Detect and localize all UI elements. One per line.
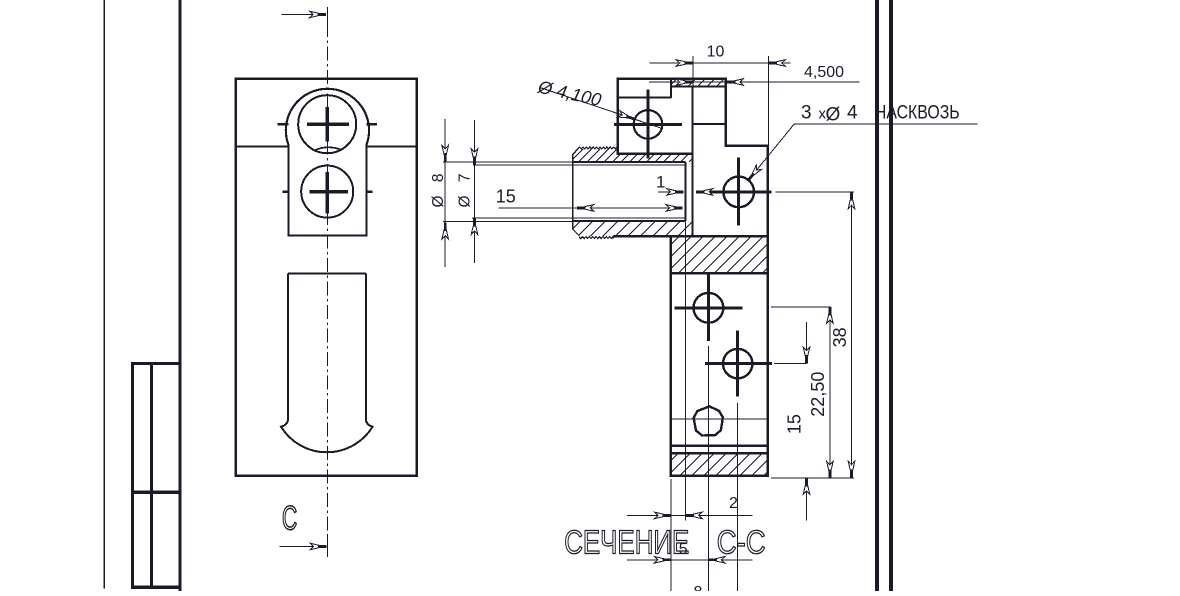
svg-text:3: 3 (801, 103, 812, 124)
svg-text:C: C (282, 498, 297, 536)
svg-text:Ø 7: Ø 7 (457, 174, 474, 208)
svg-text:15: 15 (785, 414, 805, 434)
svg-text:2: 2 (729, 495, 738, 512)
svg-text:С-С: С-С (717, 524, 766, 561)
svg-text:СЕЧЕНИЕ: СЕЧЕНИЕ (564, 524, 689, 561)
svg-text:4,500: 4,500 (804, 64, 844, 81)
svg-text:4: 4 (847, 103, 858, 124)
svg-text:Ø: Ø (826, 105, 841, 126)
svg-text:15: 15 (496, 187, 516, 207)
svg-text:22,50: 22,50 (808, 372, 828, 417)
svg-text:8: 8 (694, 584, 703, 591)
svg-text:Ø 8: Ø 8 (430, 174, 447, 208)
svg-text:38: 38 (830, 327, 850, 347)
svg-text:10: 10 (707, 44, 725, 61)
svg-text:НАСКВОЗЬ: НАСКВОЗЬ (875, 103, 960, 124)
svg-text:1: 1 (656, 173, 665, 192)
